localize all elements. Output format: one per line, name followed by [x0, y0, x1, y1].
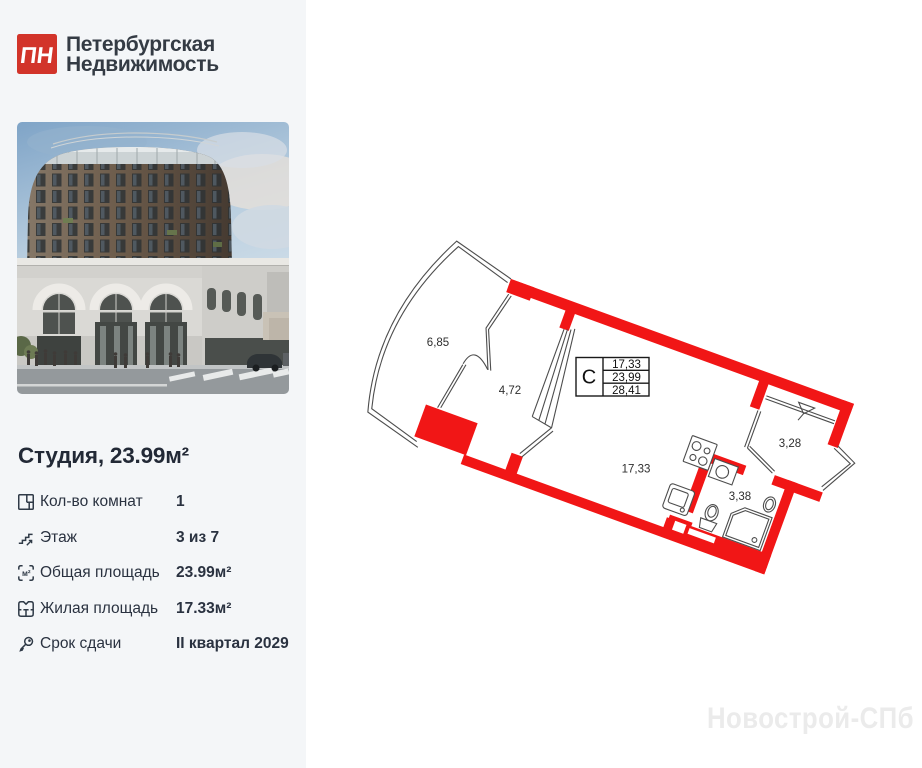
svg-text:23,99: 23,99: [612, 372, 641, 384]
svg-text:4,72: 4,72: [499, 385, 521, 397]
svg-text:3,38: 3,38: [729, 491, 751, 503]
svg-text:17,33: 17,33: [622, 464, 651, 476]
svg-text:С: С: [582, 367, 596, 389]
svg-text:28,41: 28,41: [612, 385, 641, 397]
svg-text:3,28: 3,28: [779, 438, 801, 450]
svg-text:6,85: 6,85: [427, 337, 449, 349]
svg-text:17,33: 17,33: [612, 359, 641, 371]
